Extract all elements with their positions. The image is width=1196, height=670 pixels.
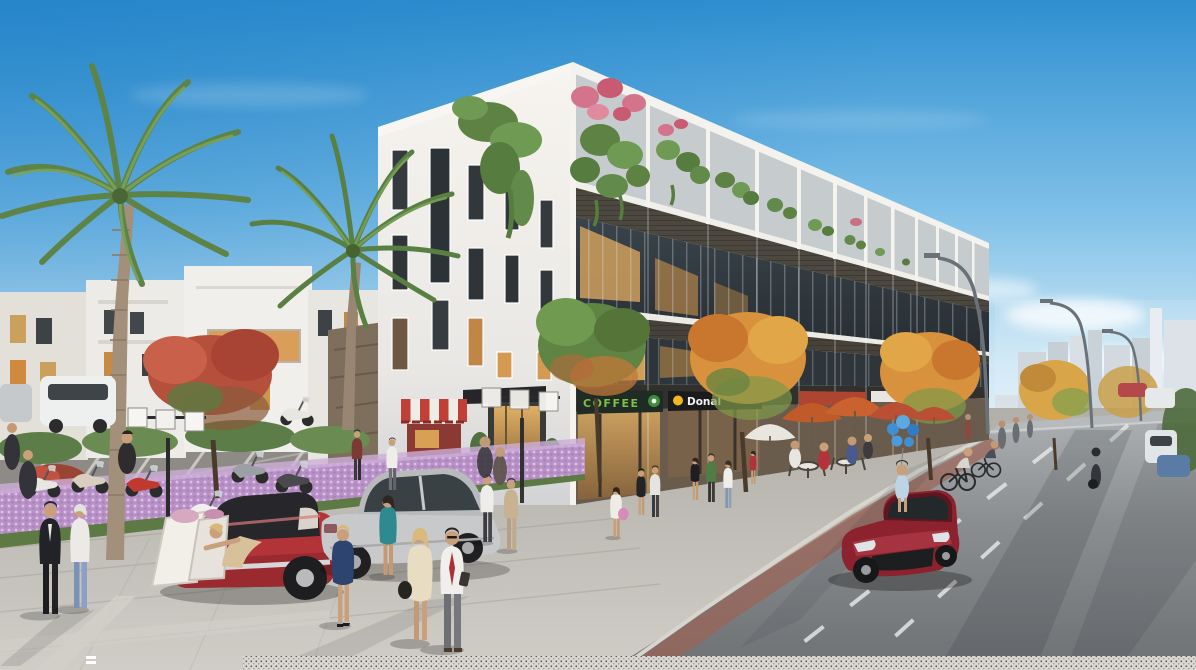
- coffee-sign-label: COFFEE: [583, 397, 639, 410]
- architectural-rendering: COFFEE Donal: [0, 0, 1196, 670]
- donal-logo-icon: [673, 396, 683, 406]
- halftone-strip: [86, 656, 1196, 670]
- scene-canvas: COFFEE Donal: [0, 0, 1196, 670]
